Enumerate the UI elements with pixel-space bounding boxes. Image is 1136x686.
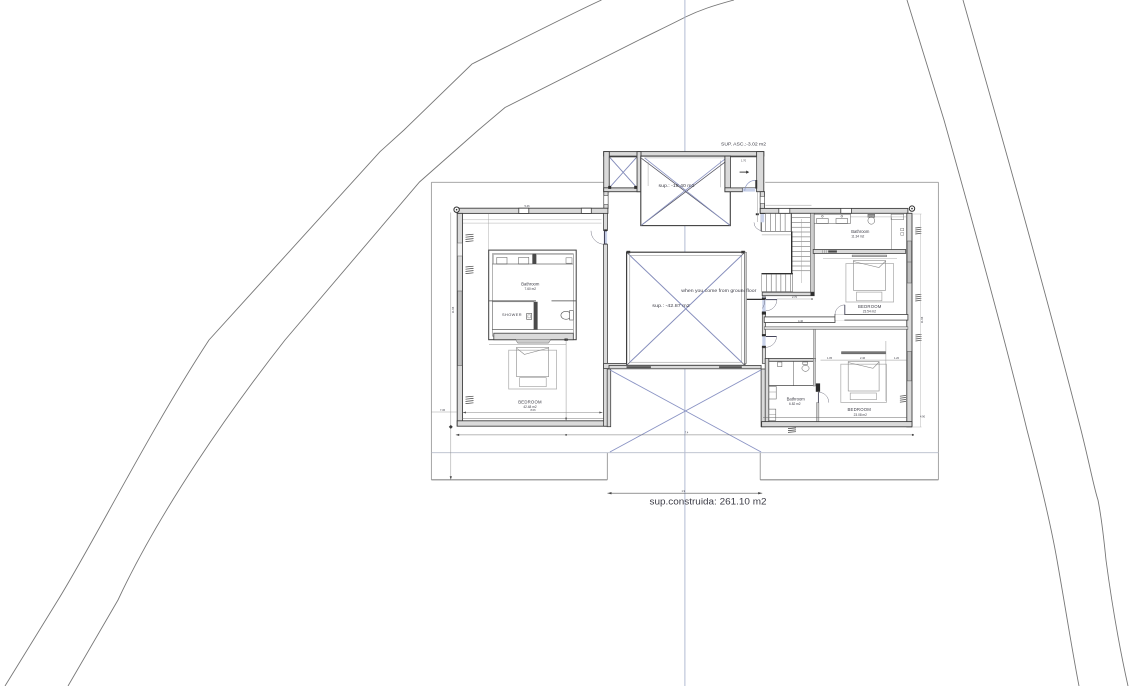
svg-text:8.06: 8.06: [530, 408, 536, 412]
svg-text:11.96: 11.96: [451, 306, 455, 313]
svg-text:11.96: 11.96: [920, 316, 924, 323]
svg-text:BEDROOM: BEDROOM: [518, 399, 542, 404]
svg-text:BEDROOM: BEDROOM: [847, 407, 871, 412]
svg-text:23.54 m2: 23.54 m2: [863, 309, 877, 313]
svg-text:Bathroom: Bathroom: [787, 397, 806, 402]
svg-text:sup.construida: 261.10 m2: sup.construida: 261.10 m2: [650, 496, 767, 506]
svg-text:SUP. ASC.:-3.02 m2: SUP. ASC.:-3.02 m2: [721, 141, 767, 146]
svg-text:BEDROOM: BEDROOM: [858, 304, 882, 309]
svg-text:2.70: 2.70: [792, 295, 798, 299]
svg-text:5.46: 5.46: [524, 204, 530, 208]
svg-text:7.36: 7.36: [440, 408, 446, 412]
svg-text:11.34 m2: 11.34 m2: [851, 234, 864, 238]
svg-text:23.08 m2: 23.08 m2: [854, 413, 868, 417]
svg-text:4.90: 4.90: [920, 415, 926, 419]
svg-text:7.60 m2: 7.60 m2: [525, 287, 537, 291]
svg-text:42.48 m2: 42.48 m2: [523, 405, 537, 409]
svg-text:4.40: 4.40: [798, 319, 804, 323]
svg-text:sup.: -42.87 m2: sup.: -42.87 m2: [652, 303, 690, 308]
svg-text:1.05: 1.05: [827, 356, 833, 360]
svg-text:Bathroom: Bathroom: [851, 229, 870, 234]
svg-text:2.46: 2.46: [860, 356, 866, 360]
svg-text:1.70: 1.70: [741, 158, 747, 162]
svg-text:1.9: 1.9: [681, 489, 685, 493]
svg-text:sup.: -18.40 m2: sup.: -18.40 m2: [659, 183, 695, 188]
svg-text:6.82 m2: 6.82 m2: [789, 402, 801, 406]
svg-text:1.20: 1.20: [894, 356, 900, 360]
svg-text:SHOWER: SHOWER: [502, 312, 522, 317]
